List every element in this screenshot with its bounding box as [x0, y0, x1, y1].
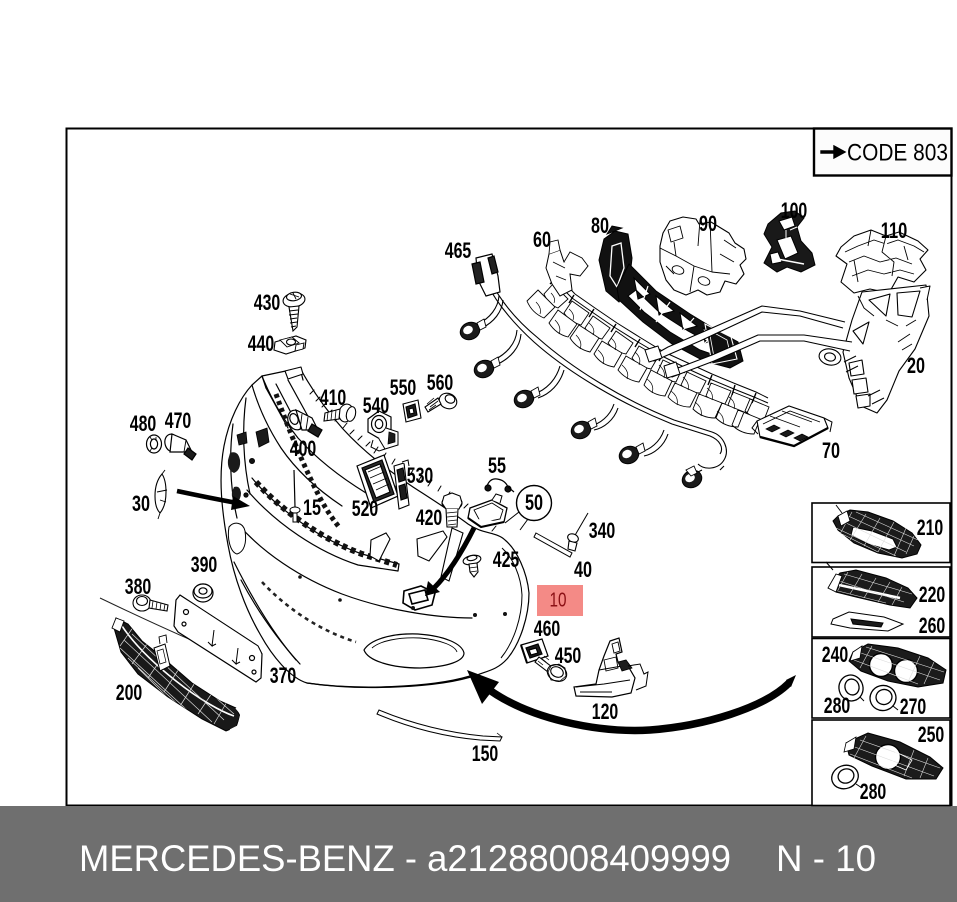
svg-text:210: 210	[917, 515, 944, 540]
svg-text:250: 250	[918, 722, 945, 747]
svg-text:260: 260	[919, 613, 946, 638]
svg-text:10: 10	[550, 590, 567, 612]
svg-text:30: 30	[132, 491, 150, 516]
svg-text:440: 440	[248, 331, 275, 356]
svg-text:240: 240	[822, 642, 849, 667]
svg-text:470: 470	[165, 408, 192, 433]
svg-text:380: 380	[125, 574, 152, 599]
svg-text:550: 550	[390, 375, 417, 400]
svg-text:15: 15	[303, 495, 321, 520]
svg-text:N - 10: N - 10	[776, 838, 876, 879]
svg-text:460: 460	[534, 616, 561, 641]
svg-text:20: 20	[907, 353, 925, 378]
svg-text:530: 530	[407, 463, 434, 488]
svg-text:100: 100	[781, 198, 808, 223]
svg-text:560: 560	[427, 370, 454, 395]
svg-text:280: 280	[860, 779, 887, 804]
svg-text:340: 340	[589, 518, 616, 543]
svg-text:CODE 803: CODE 803	[847, 140, 948, 167]
svg-text:200: 200	[116, 680, 143, 705]
svg-text:480: 480	[130, 411, 157, 436]
svg-text:150: 150	[472, 741, 499, 766]
svg-text:410: 410	[320, 385, 347, 410]
svg-text:390: 390	[191, 552, 218, 577]
svg-text:430: 430	[254, 290, 281, 315]
svg-text:220: 220	[919, 582, 946, 607]
svg-text:400: 400	[290, 436, 317, 461]
svg-text:280: 280	[824, 693, 851, 718]
svg-text:420: 420	[416, 505, 443, 530]
svg-text:55: 55	[488, 453, 506, 478]
svg-text:40: 40	[574, 557, 592, 582]
svg-text:370: 370	[270, 663, 297, 688]
svg-text:540: 540	[363, 393, 390, 418]
svg-text:90: 90	[699, 211, 717, 236]
svg-text:520: 520	[352, 496, 379, 521]
svg-text:425: 425	[493, 547, 520, 572]
svg-text:110: 110	[881, 218, 908, 243]
svg-text:60: 60	[533, 227, 551, 252]
svg-text:270: 270	[900, 694, 927, 719]
svg-text:465: 465	[445, 238, 472, 263]
svg-text:450: 450	[555, 643, 582, 668]
svg-text:50: 50	[525, 490, 543, 515]
svg-text:MERCEDES-BENZ - a2128800840999: MERCEDES-BENZ - a21288008409999	[79, 838, 731, 879]
svg-text:70: 70	[822, 438, 840, 463]
svg-text:80: 80	[591, 213, 609, 238]
svg-text:120: 120	[592, 699, 619, 724]
